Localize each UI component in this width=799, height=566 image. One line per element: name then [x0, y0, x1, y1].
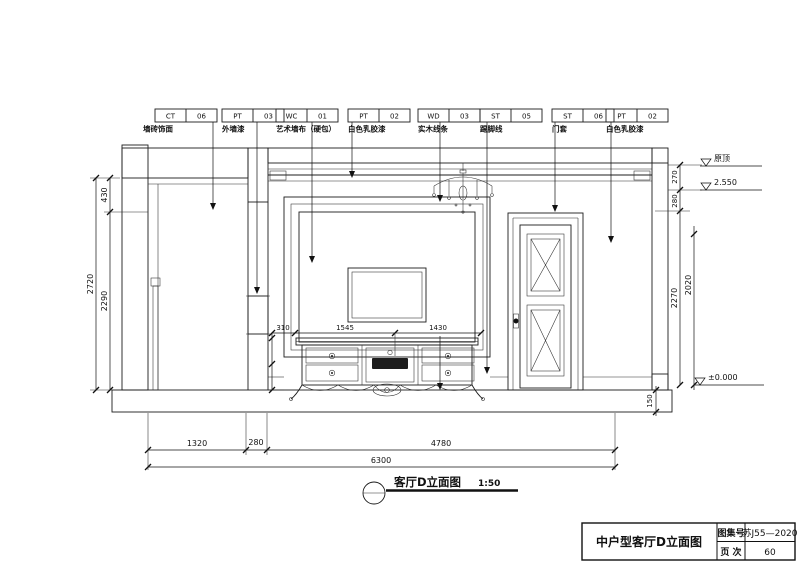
dim-right-seg1: 270 [671, 170, 679, 183]
left-dimensions: 2720 430 2290 [86, 175, 148, 393]
level-ceiling: 2.550 [700, 178, 762, 190]
material-num: 06 [594, 113, 603, 121]
dim-cab-seg2: 1545 [336, 324, 354, 332]
chandelier [433, 163, 494, 213]
window-sill-block [248, 296, 268, 334]
title-block: 中户型客厅D立面图 图集号 苏J55—2020 页 次 60 [582, 523, 798, 560]
wallpaper-panel [299, 212, 475, 342]
cabinet-nameplate [372, 358, 408, 369]
balcony-zone [148, 184, 248, 390]
dim-bottom-seg3: 4780 [431, 439, 451, 448]
titleblock-page-label: 页 次 [720, 546, 741, 558]
material-num: 02 [390, 113, 399, 121]
level-floor-value: ±0.000 [708, 373, 738, 382]
material-label: PT 02 白色乳胶漆 [606, 109, 668, 243]
material-code: ST [563, 113, 572, 121]
material-desc: 踢脚线 [480, 124, 503, 134]
right-wall-base [652, 374, 668, 390]
material-desc: 艺术墙布（硬包） [276, 124, 336, 134]
material-desc: 白色乳胶漆 [606, 124, 644, 134]
material-desc: 墙砖饰面 [143, 124, 173, 134]
tv-cabinet [290, 338, 485, 401]
material-label: PT 03 外墙漆 [222, 109, 284, 294]
material-desc: 实木线条 [418, 124, 448, 134]
material-num: 03 [460, 113, 469, 121]
material-code: PT [359, 113, 368, 121]
titleblock-atlas-value: 苏J55—2020 [742, 527, 797, 539]
dim-right-seg3: 2270 [670, 288, 679, 308]
cabinet-leg [291, 385, 302, 399]
skirting [268, 377, 652, 390]
level-ceiling-value: 2.550 [714, 178, 737, 187]
material-code: WC [286, 113, 298, 121]
material-num: 03 [264, 113, 273, 121]
level-roof-label: 原顶 [714, 154, 730, 163]
level-floor: ±0.000 [694, 373, 764, 385]
dim-slab: 150 [646, 394, 654, 407]
material-code: PT [233, 113, 242, 121]
dim-left-top: 430 [100, 187, 109, 202]
dim-cab-seg1: 310 [276, 324, 289, 332]
material-code: CT [166, 113, 176, 121]
left-ceiling-slab [122, 148, 248, 178]
dim-left-total: 2720 [86, 274, 95, 294]
elevation-drawing: CT 06 墙砖饰面 PT 03 外墙漆 WC 01 艺术墙布（硬包） PT 0… [0, 0, 799, 566]
bottom-dimensions: 1320 280 4780 6300 [145, 413, 618, 470]
wall-sections [112, 145, 672, 412]
cabinet-leg [472, 385, 483, 399]
door-frame [508, 213, 583, 390]
material-num: 01 [318, 113, 327, 121]
dim-left-bottom: 2290 [100, 291, 109, 311]
material-code: WD [427, 113, 439, 121]
dim-bottom-total: 6300 [371, 456, 391, 465]
left-wall-section [122, 145, 148, 390]
material-desc: 外墙漆 [222, 124, 245, 134]
material-label: ST 06 门套 [552, 109, 614, 212]
pipe-cap [151, 278, 160, 286]
floor-slab [112, 390, 672, 412]
right-ceiling-slab [268, 148, 652, 163]
titleblock-atlas-label: 图集号 [717, 527, 744, 539]
pipe [153, 286, 158, 390]
center-pier [248, 148, 268, 202]
right-dimensions: 270 280 2270 2020 原顶 2.550 ±0.000 150 [646, 154, 764, 416]
material-labels: CT 06 墙砖饰面 PT 03 外墙漆 WC 01 艺术墙布（硬包） PT 0… [143, 109, 668, 374]
caption-scale: 1:50 [478, 479, 500, 489]
material-label: CT 06 墙砖饰面 [143, 109, 217, 210]
dim-bottom-seg1: 1320 [187, 439, 207, 448]
right-wall-top [652, 148, 668, 163]
dim-right-door: 2020 [684, 275, 693, 295]
dim-bottom-seg2: 280 [248, 438, 263, 447]
drawing-caption: 客厅D立面图 1:50 [363, 475, 518, 504]
titleblock-drawing-name: 中户型客厅D立面图 [596, 534, 702, 549]
material-num: 02 [648, 113, 657, 121]
titleblock-page-value: 60 [764, 548, 776, 558]
door [508, 213, 583, 390]
caption-title: 客厅D立面图 [393, 475, 461, 489]
dim-cab-seg3: 1430 [429, 324, 447, 332]
material-code: ST [491, 113, 500, 121]
material-code: PT [617, 113, 626, 121]
material-num: 06 [197, 113, 206, 121]
material-label: PT 02 白色乳胶漆 [348, 109, 410, 178]
carved-apron [302, 385, 472, 393]
level-roof: 原顶 [700, 154, 762, 166]
material-num: 05 [522, 113, 531, 121]
cad-sheet: CT 06 墙砖饰面 PT 03 外墙漆 WC 01 艺术墙布（硬包） PT 0… [0, 0, 799, 566]
material-label: WC 01 艺术墙布（硬包） [276, 109, 338, 263]
dim-right-seg2: 280 [671, 194, 679, 207]
material-desc: 门套 [552, 124, 567, 134]
material-desc: 白色乳胶漆 [348, 124, 386, 134]
door-handle [514, 319, 519, 324]
door-leaf [520, 225, 571, 388]
tv-screen [348, 268, 426, 322]
